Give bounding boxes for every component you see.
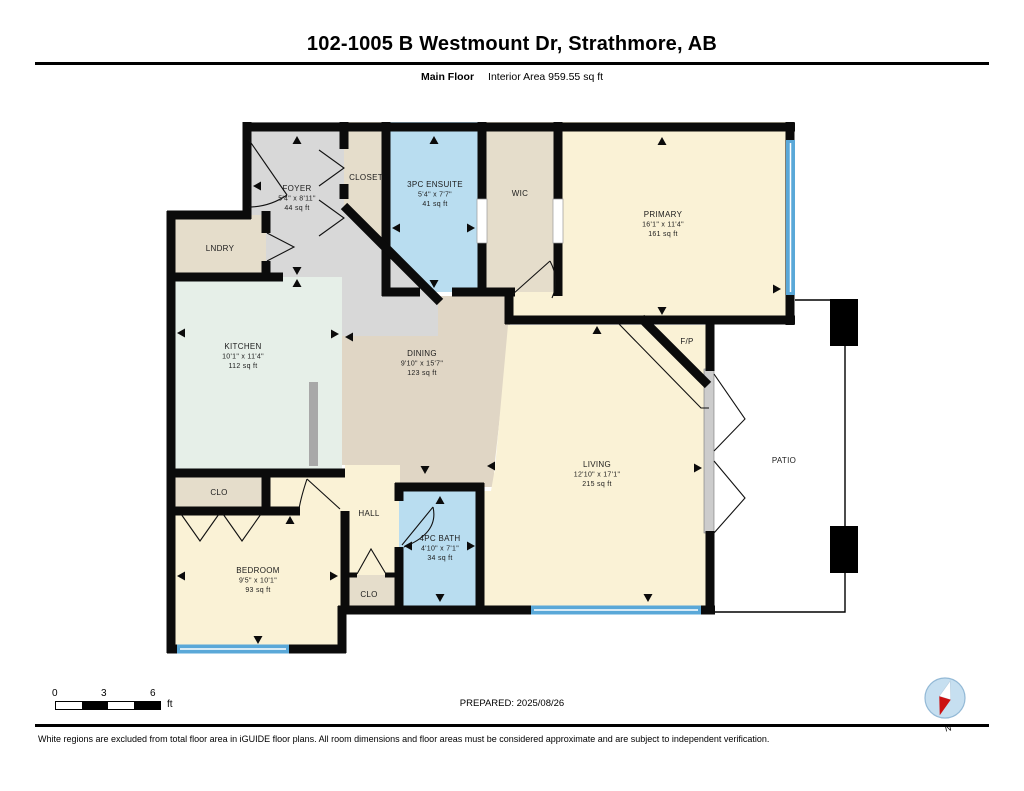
disclaimer-text: White regions are excluded from total fl…: [38, 734, 994, 744]
room-label-hall: HALL: [358, 509, 379, 518]
room-label-lndry: LNDRY: [206, 244, 235, 253]
prepared-date: PREPARED: 2025/08/26: [0, 698, 1024, 709]
patio-post-top: [830, 299, 858, 346]
bedroom-entry: [266, 473, 345, 511]
floor-plan-page: 102-1005 B Westmount Dr, Strathmore, AB …: [0, 0, 1024, 791]
room-label-patio: PATIO: [772, 456, 796, 465]
wic-door-right: [553, 199, 563, 243]
room-wic: [482, 122, 558, 292]
room-label-clo1: CLO: [210, 488, 227, 497]
room-label-closet: CLOSET: [349, 173, 383, 182]
floor-plan-drawing: FOYER5'4" x 8'11"44 sq ftCLOSET3PC ENSUI…: [0, 0, 1024, 791]
room-label-fp: F/P: [680, 337, 693, 346]
room-label-wic: WIC: [512, 189, 528, 198]
room-label-clo2: CLO: [360, 590, 377, 599]
patio-post-bottom: [830, 526, 858, 573]
patio-sliding-door: [704, 369, 714, 533]
footer-divider: [35, 724, 989, 727]
wic-door-left: [477, 199, 487, 243]
kitchen-counter: [309, 382, 318, 466]
